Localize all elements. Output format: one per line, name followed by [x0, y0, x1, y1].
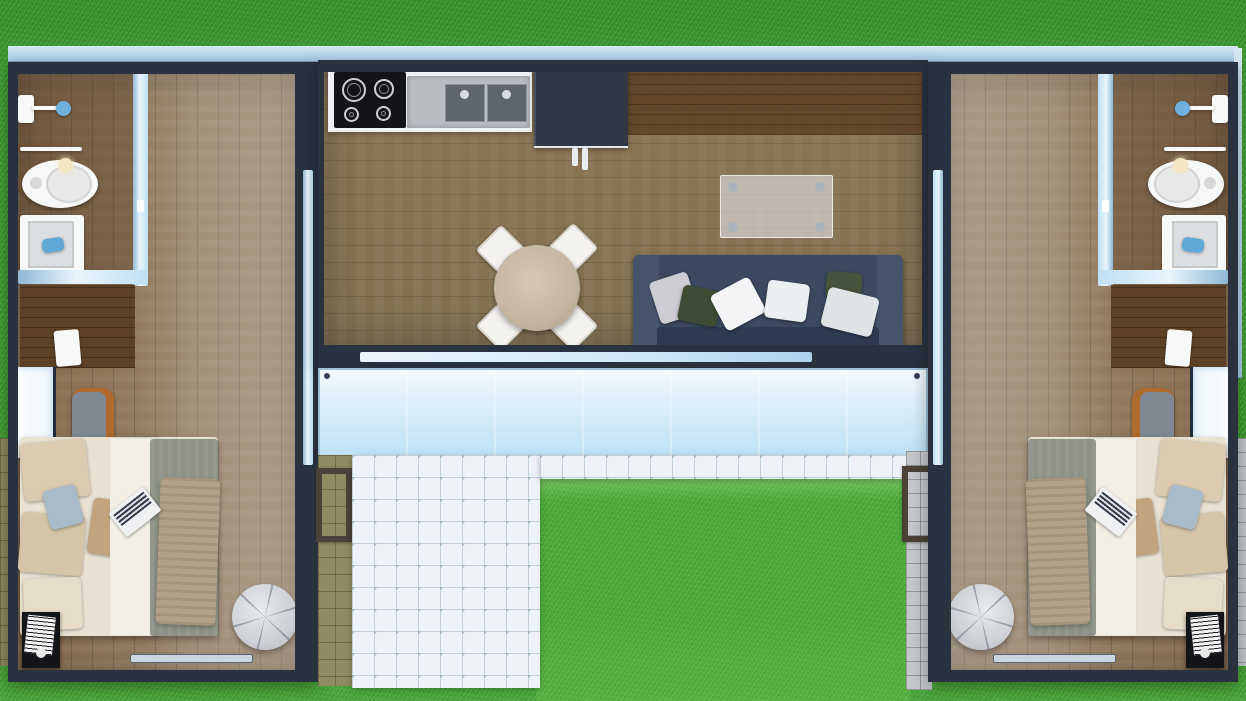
patio-white-square	[352, 455, 540, 688]
right-shower-head	[1175, 101, 1190, 116]
right-desk-chair-seat	[1140, 392, 1174, 442]
left-unit-glass-door-east	[303, 170, 313, 465]
right-unit-glass-door-east	[933, 170, 943, 465]
deck-hinge-left	[324, 373, 330, 379]
sink-faucet-right	[502, 90, 511, 99]
left-unit	[8, 62, 318, 682]
console-foot-sw	[728, 222, 738, 232]
left-nightstand-knob	[36, 648, 46, 658]
right-unit-wall-left	[1228, 62, 1238, 682]
deck-hinge-right	[914, 373, 920, 379]
sofa-pillow-white-2	[764, 279, 811, 322]
scene	[0, 0, 1246, 701]
glass-console-table	[720, 175, 833, 238]
patio-white-strip	[540, 455, 906, 479]
right-toilet-button	[1204, 177, 1216, 189]
console-foot-nw	[728, 182, 738, 192]
cooktop-burner-small-left	[344, 107, 359, 122]
left-toilet-button	[30, 177, 42, 189]
right-unit-wall-bottom	[928, 670, 1238, 682]
left-partition-handle	[137, 200, 144, 212]
console-foot-se	[815, 222, 825, 232]
left-bed-throw	[155, 477, 220, 626]
sofa	[633, 255, 903, 350]
left-door-threshold	[130, 654, 253, 663]
doormat-left	[316, 468, 352, 542]
right-partition-handle	[1102, 200, 1109, 212]
left-toilet-light	[58, 158, 73, 173]
console-foot-ne	[815, 182, 825, 192]
cooktop-burner-large-left	[342, 78, 366, 102]
cooktop-burner-small-right	[376, 106, 391, 121]
right-bath-shelf	[1164, 147, 1226, 151]
right-bed-duvet	[1090, 438, 1136, 636]
left-bath-partition-horizontal	[18, 270, 148, 284]
right-desk-papers	[1164, 329, 1192, 367]
center-floor-walnut-band	[628, 70, 928, 135]
center-wall-top	[318, 60, 928, 72]
center-module	[318, 60, 928, 368]
right-bath-partition-vertical	[1098, 62, 1113, 286]
sink-faucet-left	[460, 90, 469, 99]
right-toilet-light	[1173, 158, 1188, 173]
dining-table	[494, 245, 580, 331]
left-shower-head	[56, 101, 71, 116]
left-unit-wall-bottom	[8, 670, 318, 682]
left-unit-wall-top	[8, 62, 318, 74]
kitchen-cooktop	[334, 72, 406, 128]
right-nightstand-knob	[1200, 648, 1210, 658]
right-pouf	[948, 584, 1014, 650]
sofa-pillow-white-1	[709, 276, 767, 332]
south-window-bar	[360, 352, 812, 362]
left-bath-partition-vertical	[133, 62, 148, 286]
sofa-arm-right	[877, 255, 903, 350]
center-wall-left	[318, 60, 324, 368]
right-bath-partition-horizontal	[1098, 270, 1228, 284]
refrigerator-handle-right	[582, 148, 588, 170]
left-desk-papers	[53, 329, 81, 367]
right-door-threshold	[993, 654, 1116, 663]
glass-deck	[318, 368, 928, 455]
refrigerator-handle-left	[572, 148, 578, 166]
left-unit-wall-left	[8, 62, 18, 682]
lawn-bright-patch	[536, 468, 910, 701]
right-shower-bracket	[1212, 95, 1228, 123]
left-bath-shelf	[20, 147, 82, 151]
right-bed-throw	[1025, 477, 1090, 626]
refrigerator	[534, 70, 628, 148]
kitchen-sink-unit	[407, 76, 530, 128]
right-towel	[1181, 237, 1205, 254]
left-pouf	[232, 584, 298, 650]
right-unit	[928, 62, 1238, 682]
right-unit-wall-top	[928, 62, 1238, 74]
left-desk-chair-seat	[72, 392, 106, 442]
cooktop-burner-large-right	[374, 79, 394, 99]
